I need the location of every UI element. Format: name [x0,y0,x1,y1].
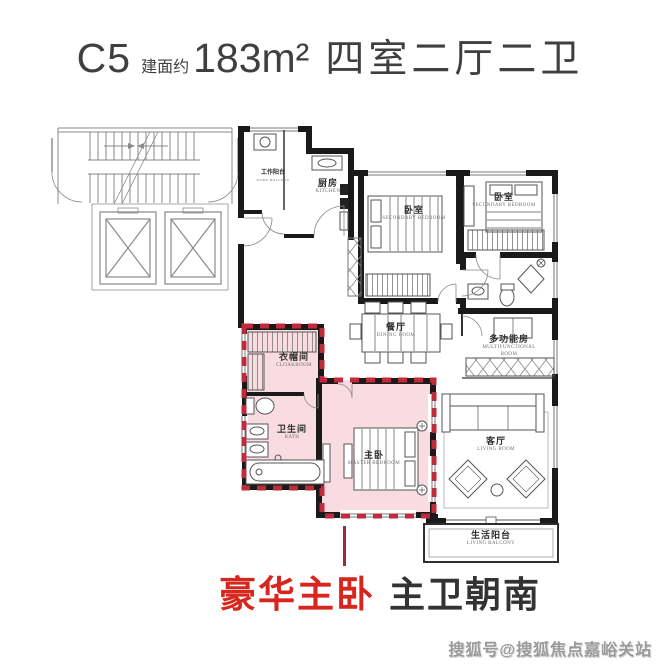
stairwell [52,128,238,204]
caption-detail: 主卫朝南 [389,566,541,618]
leader-line [343,526,346,566]
caption-highlight: 豪华主卧 [219,564,375,618]
watermark: 搜狐号@搜狐焦点嘉峪关站 [448,636,652,660]
floorplan-page: C5 建面约 183m² 四室二厅二卫 [0,0,660,666]
elevators [92,204,228,290]
selling-point-caption: 豪华主卧 主卫朝南 [219,564,541,618]
